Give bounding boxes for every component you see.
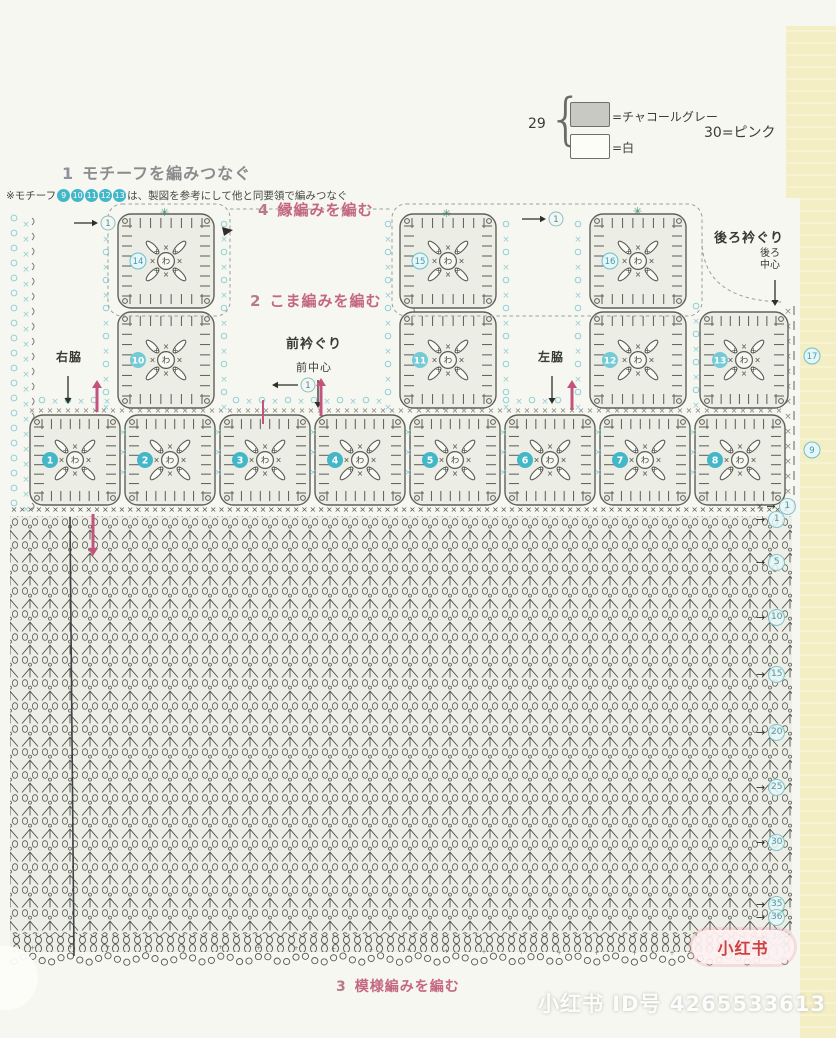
row-number-chip: 20 — [768, 724, 785, 741]
svg-text:×: × — [85, 505, 92, 514]
svg-text:15: 15 — [415, 257, 426, 267]
svg-text:×: × — [72, 442, 78, 451]
svg-text:+: + — [537, 465, 543, 474]
svg-text:×: × — [77, 397, 85, 407]
svg-text:×: × — [22, 490, 30, 500]
svg-text:×: × — [22, 235, 30, 245]
svg-text:×: × — [343, 505, 350, 514]
svg-text:×: × — [567, 505, 574, 514]
granny-square-motif: ×+×+×+×+わ3 — [220, 415, 310, 505]
svg-text:×: × — [51, 397, 59, 407]
svg-text:×: × — [77, 505, 84, 514]
svg-text:×: × — [22, 460, 30, 470]
svg-text:+: + — [176, 446, 182, 455]
svg-text:×: × — [574, 375, 582, 385]
label-back-neck: 後ろ衿ぐり — [714, 227, 784, 246]
svg-text:×: × — [168, 505, 175, 514]
row-marker-10: →10 — [756, 609, 785, 626]
svg-text:×: × — [502, 319, 510, 329]
svg-text:わ: わ — [641, 456, 650, 466]
svg-text:×: × — [621, 356, 627, 365]
arrow-right-icon: → — [756, 836, 765, 849]
svg-text:×: × — [484, 505, 491, 514]
svg-text:×: × — [22, 445, 30, 455]
svg-text:×: × — [22, 385, 30, 395]
svg-text:+: + — [347, 465, 353, 474]
svg-text:+: + — [625, 266, 631, 275]
cross-glyph: × — [756, 502, 764, 512]
svg-text:×: × — [167, 442, 173, 451]
svg-text:×: × — [102, 263, 110, 273]
svg-text:+: + — [157, 446, 163, 455]
svg-text:×: × — [445, 369, 451, 378]
label-front-neck: 前衿ぐり — [286, 333, 342, 352]
svg-text:×: × — [404, 468, 412, 478]
svg-text:×: × — [326, 406, 333, 415]
svg-text:わ: わ — [444, 257, 453, 267]
svg-text:×: × — [533, 406, 540, 415]
section-3-title: 3模様編みを編む — [336, 976, 460, 996]
svg-text:+: + — [644, 365, 650, 374]
granny-square-motif: ×+×+×+×+わ7 — [600, 415, 690, 505]
svg-text:12: 12 — [604, 356, 617, 366]
svg-text:×: × — [245, 406, 252, 415]
svg-text:×: × — [220, 403, 228, 413]
svg-text:×: × — [22, 265, 30, 275]
svg-text:×: × — [574, 263, 582, 273]
svg-text:+: + — [651, 446, 657, 455]
svg-text:×: × — [102, 235, 110, 245]
svg-text:13: 13 — [714, 356, 727, 366]
svg-text:×: × — [272, 406, 279, 415]
svg-text:+: + — [625, 365, 631, 374]
svg-text:×: × — [370, 456, 376, 465]
svg-text:+: + — [727, 446, 733, 455]
label-back-center: 後ろ中心 — [760, 248, 780, 271]
svg-text:×: × — [655, 456, 661, 465]
svg-text:×: × — [560, 456, 566, 465]
svg-text:+: + — [669, 950, 674, 957]
legend-label-white: =白 — [612, 139, 634, 156]
white-swatch — [570, 134, 610, 159]
svg-text:×: × — [220, 291, 228, 301]
granny-square-motif: ×+×+×+×+わ1 — [30, 415, 120, 505]
svg-text:+: + — [105, 944, 110, 951]
svg-text:×: × — [103, 397, 111, 407]
svg-text:×: × — [700, 505, 707, 514]
svg-text:×: × — [534, 505, 541, 514]
svg-text:×: × — [426, 505, 433, 514]
svg-text:×: × — [308, 406, 315, 415]
svg-text:×: × — [417, 505, 424, 514]
svg-text:×: × — [22, 505, 30, 515]
svg-text:+: + — [153, 247, 159, 256]
svg-text:×: × — [689, 468, 697, 478]
svg-text:+: + — [157, 465, 163, 474]
svg-text:×: × — [309, 468, 317, 478]
svg-text:×: × — [214, 428, 222, 438]
svg-text:14: 14 — [133, 257, 144, 267]
svg-text:+: + — [442, 446, 448, 455]
svg-text:×: × — [648, 356, 654, 365]
svg-text:×: × — [716, 505, 723, 514]
svg-text:×: × — [285, 505, 292, 514]
svg-text:わ: わ — [736, 456, 745, 466]
svg-text:×: × — [452, 442, 458, 451]
svg-text:×: × — [650, 505, 657, 514]
svg-text:×: × — [149, 356, 155, 365]
svg-text:17: 17 — [807, 352, 818, 362]
svg-text:×: × — [102, 347, 110, 357]
svg-text:×: × — [689, 448, 697, 458]
svg-text:×: × — [52, 505, 59, 514]
svg-text:+: + — [454, 346, 460, 355]
svg-text:×: × — [404, 448, 412, 458]
svg-text:×: × — [102, 375, 110, 385]
note-motif-chip: 12 — [99, 189, 112, 202]
svg-text:+: + — [454, 266, 460, 275]
pattern-stitch-area — [10, 516, 792, 936]
svg-text:×: × — [741, 342, 747, 351]
svg-text:×: × — [44, 505, 51, 514]
svg-text:+: + — [143, 944, 148, 951]
svg-text:×: × — [357, 469, 363, 478]
svg-text:×: × — [658, 505, 665, 514]
section-1-title: 1モチーフを編みつなぐ — [62, 160, 251, 184]
svg-text:+: + — [81, 465, 87, 474]
svg-text:+: + — [444, 948, 449, 955]
svg-text:×: × — [357, 442, 363, 451]
svg-text:×: × — [152, 505, 159, 514]
svg-text:×: × — [83, 406, 90, 415]
row-marker-15: →15 — [756, 666, 785, 683]
svg-text:×: × — [442, 505, 449, 514]
row-number-chip: 15 — [768, 666, 785, 683]
svg-text:+: + — [62, 465, 68, 474]
svg-text:×: × — [583, 505, 590, 514]
svg-text:×: × — [683, 505, 690, 514]
svg-text:×: × — [149, 257, 155, 266]
svg-text:×: × — [309, 448, 317, 458]
svg-text:×: × — [635, 342, 641, 351]
svg-text:×: × — [293, 505, 300, 514]
svg-text:×: × — [625, 505, 632, 514]
svg-text:×: × — [741, 505, 748, 514]
legend-yarn-30: 30=ピンク — [704, 122, 776, 142]
svg-text:+: + — [172, 365, 178, 374]
row-number-chip: 30 — [768, 834, 785, 851]
crochet-pattern-page: +++++++++++++++++++++×××××××××××××××××××… — [0, 0, 836, 1038]
svg-text:11: 11 — [414, 356, 427, 366]
svg-text:×: × — [542, 505, 549, 514]
svg-text:+: + — [644, 346, 650, 355]
svg-text:+: + — [347, 446, 353, 455]
svg-text:×: × — [185, 505, 192, 514]
svg-text:×: × — [119, 448, 127, 458]
svg-text:×: × — [343, 456, 349, 465]
svg-text:×: × — [127, 505, 134, 514]
granny-square-motif: ×+×+×+×+わ2 — [125, 415, 215, 505]
svg-text:×: × — [431, 356, 437, 365]
svg-text:1: 1 — [305, 381, 310, 391]
svg-text:×: × — [689, 428, 697, 438]
svg-text:×: × — [524, 406, 531, 415]
svg-text:×: × — [143, 505, 150, 514]
svg-text:×: × — [574, 291, 582, 301]
svg-text:×: × — [692, 317, 700, 327]
granny-square-motif: ×+×+×+×+わ5 — [410, 415, 500, 505]
svg-text:×: × — [110, 505, 117, 514]
svg-text:×: × — [692, 345, 700, 355]
svg-text:×: × — [220, 347, 228, 357]
svg-text:×: × — [163, 342, 169, 351]
svg-text:+: + — [331, 946, 336, 953]
svg-text:×: × — [708, 505, 715, 514]
svg-text:×: × — [376, 505, 383, 514]
svg-text:×: × — [451, 505, 458, 514]
svg-text:+: + — [366, 446, 372, 455]
svg-text:×: × — [384, 375, 392, 385]
svg-text:×: × — [119, 505, 126, 514]
svg-text:×: × — [210, 505, 217, 514]
svg-text:×: × — [290, 406, 297, 415]
svg-text:+: + — [625, 346, 631, 355]
svg-text:×: × — [22, 220, 30, 230]
svg-text:+: + — [750, 365, 756, 374]
svg-text:×: × — [359, 505, 366, 514]
svg-text:×: × — [551, 406, 558, 415]
row-marker-25: →25 — [756, 779, 785, 796]
svg-text:×: × — [47, 406, 54, 415]
svg-text:×: × — [475, 505, 482, 514]
svg-text:×: × — [754, 356, 760, 365]
svg-text:×: × — [587, 406, 594, 415]
svg-text:5: 5 — [427, 455, 434, 466]
note-motif-chip: 10 — [71, 189, 84, 202]
svg-text:×: × — [38, 406, 45, 415]
svg-text:×: × — [22, 400, 30, 410]
svg-text:×: × — [281, 406, 288, 415]
svg-text:+: + — [218, 944, 223, 951]
svg-text:×: × — [36, 505, 43, 514]
svg-text:×: × — [384, 263, 392, 273]
svg-text:わ: わ — [451, 456, 460, 466]
svg-text:+: + — [746, 446, 752, 455]
legend-label-charcoal: =チャコールグレー — [612, 108, 718, 125]
svg-text:わ: わ — [356, 456, 365, 466]
label-left-side: 左脇 — [538, 348, 564, 365]
svg-text:×: × — [69, 505, 76, 514]
svg-text:×: × — [163, 270, 169, 279]
svg-text:×: × — [334, 505, 341, 514]
svg-text:×: × — [262, 469, 268, 478]
svg-text:わ: わ — [634, 356, 643, 366]
svg-text:+: + — [481, 949, 486, 956]
row-marker-1: →1 — [756, 511, 785, 528]
svg-text:×: × — [326, 505, 333, 514]
svg-text:+: + — [442, 465, 448, 474]
svg-text:×: × — [309, 505, 316, 514]
svg-text:×: × — [275, 456, 281, 465]
svg-text:+: + — [644, 247, 650, 256]
svg-text:×: × — [541, 397, 549, 407]
svg-text:×: × — [102, 319, 110, 329]
svg-text:×: × — [574, 235, 582, 245]
granny-square-motif: ×+×+×+×+わ15 — [400, 214, 496, 308]
svg-text:×: × — [502, 403, 510, 413]
svg-text:×: × — [60, 505, 67, 514]
svg-text:+: + — [632, 465, 638, 474]
svg-text:×: × — [176, 356, 182, 365]
svg-text:×: × — [56, 406, 63, 415]
svg-text:×: × — [492, 505, 499, 514]
svg-text:+: + — [594, 950, 599, 957]
svg-text:×: × — [392, 505, 399, 514]
svg-text:×: × — [574, 319, 582, 329]
svg-text:×: × — [22, 250, 30, 260]
svg-text:×: × — [384, 403, 392, 413]
svg-text:×: × — [167, 469, 173, 478]
svg-text:×: × — [102, 505, 109, 514]
svg-text:×: × — [251, 505, 258, 514]
svg-text:×: × — [135, 505, 142, 514]
svg-text:×: × — [163, 243, 169, 252]
granny-square-motif: ×+×+×+×+わ8 — [695, 415, 785, 505]
svg-text:×: × — [22, 325, 30, 335]
svg-text:×: × — [724, 505, 731, 514]
svg-text:+: + — [746, 465, 752, 474]
svg-text:+: + — [271, 465, 277, 474]
svg-text:×: × — [85, 456, 91, 465]
svg-text:+: + — [293, 945, 298, 952]
svg-text:8: 8 — [712, 455, 719, 466]
svg-text:×: × — [550, 505, 557, 514]
svg-text:×: × — [299, 406, 306, 415]
note-prefix: ※モチーフ — [6, 188, 56, 203]
svg-text:×: × — [741, 369, 747, 378]
granny-square-motif: ×+×+×+×+わ10 — [118, 312, 214, 408]
svg-text:×: × — [260, 505, 267, 514]
svg-text:+: + — [153, 365, 159, 374]
svg-text:×: × — [750, 456, 756, 465]
svg-text:×: × — [628, 456, 634, 465]
svg-text:×: × — [349, 397, 357, 407]
granny-square-motif: ×+×+×+×+わ16 — [590, 214, 686, 308]
svg-text:わ: わ — [166, 456, 175, 466]
svg-text:わ: わ — [162, 257, 171, 267]
svg-text:4: 4 — [332, 455, 339, 466]
svg-text:×: × — [533, 456, 539, 465]
svg-text:×: × — [72, 469, 78, 478]
svg-text:×: × — [220, 235, 228, 245]
svg-text:×: × — [254, 406, 261, 415]
arrow-right-icon: → — [756, 911, 765, 924]
svg-text:+: + — [181, 944, 186, 951]
note-motif-chip: 13 — [113, 189, 126, 202]
svg-text:×: × — [362, 406, 369, 415]
svg-text:×: × — [102, 291, 110, 301]
svg-text:×: × — [641, 505, 648, 514]
xiaohongshu-badge: 小红书 — [692, 930, 794, 964]
svg-text:×: × — [509, 505, 516, 514]
svg-text:×: × — [542, 406, 549, 415]
row-marker-20: →20 — [756, 724, 785, 741]
svg-text:2: 2 — [142, 455, 149, 466]
svg-text:+: + — [461, 446, 467, 455]
svg-text:×: × — [22, 370, 30, 380]
svg-text:×: × — [22, 355, 30, 365]
svg-text:×: × — [220, 319, 228, 329]
svg-text:×: × — [220, 263, 228, 273]
svg-text:7: 7 — [617, 455, 624, 466]
svg-text:×: × — [560, 406, 567, 415]
xiaohongshu-badge-text: 小红书 — [717, 935, 768, 959]
svg-text:×: × — [384, 505, 391, 514]
svg-text:×: × — [384, 347, 392, 357]
svg-text:×: × — [547, 442, 553, 451]
svg-text:×: × — [737, 469, 743, 478]
svg-text:1: 1 — [105, 219, 110, 229]
arrow-right-icon: → — [756, 611, 765, 624]
granny-square-motif: ×+×+×+×+わ12 — [590, 312, 686, 408]
svg-text:×: × — [502, 263, 510, 273]
row-marker-36: →36 — [756, 909, 785, 926]
svg-text:×: × — [438, 456, 444, 465]
svg-text:1: 1 — [47, 455, 54, 466]
svg-text:×: × — [445, 243, 451, 252]
arrow-right-icon: → — [756, 781, 765, 794]
svg-text:×: × — [502, 235, 510, 245]
svg-text:+: + — [731, 346, 737, 355]
svg-text:+: + — [81, 446, 87, 455]
svg-text:×: × — [401, 505, 408, 514]
svg-text:×: × — [119, 406, 126, 415]
granny-square-motif: ×+×+×+×+わ13 — [700, 312, 788, 408]
star-marker: ✳ — [633, 205, 642, 218]
svg-text:×: × — [635, 243, 641, 252]
svg-text:+: + — [557, 950, 562, 957]
svg-text:×: × — [368, 505, 375, 514]
arrow-right-icon: → — [756, 513, 765, 526]
svg-text:×: × — [617, 505, 624, 514]
svg-text:×: × — [163, 369, 169, 378]
motif-note: ※モチーフ 910111213 は、製図を参考にして他と同要領で編みつなぐ — [6, 188, 347, 203]
svg-text:×: × — [276, 505, 283, 514]
svg-text:×: × — [226, 505, 233, 514]
svg-text:×: × — [297, 397, 305, 407]
arrow-right-icon: → — [756, 668, 765, 681]
svg-text:×: × — [642, 442, 648, 451]
row-number-chip: 5 — [768, 554, 785, 571]
svg-text:×: × — [335, 406, 342, 415]
note-motif-numbers: 910111213 — [57, 189, 126, 202]
svg-text:×: × — [547, 469, 553, 478]
svg-text:+: + — [366, 465, 372, 474]
svg-text:×: × — [248, 456, 254, 465]
svg-text:+: + — [454, 247, 460, 256]
svg-text:×: × — [22, 340, 30, 350]
svg-text:+: + — [461, 465, 467, 474]
svg-text:×: × — [384, 235, 392, 245]
svg-text:×: × — [727, 356, 733, 365]
svg-text:×: × — [202, 505, 209, 514]
svg-text:×: × — [236, 406, 243, 415]
granny-square-motif: ×+×+×+×+わ11 — [400, 312, 496, 408]
svg-text:×: × — [499, 448, 507, 458]
svg-text:×: × — [160, 505, 167, 514]
svg-text:×: × — [691, 505, 698, 514]
svg-text:×: × — [74, 406, 81, 415]
